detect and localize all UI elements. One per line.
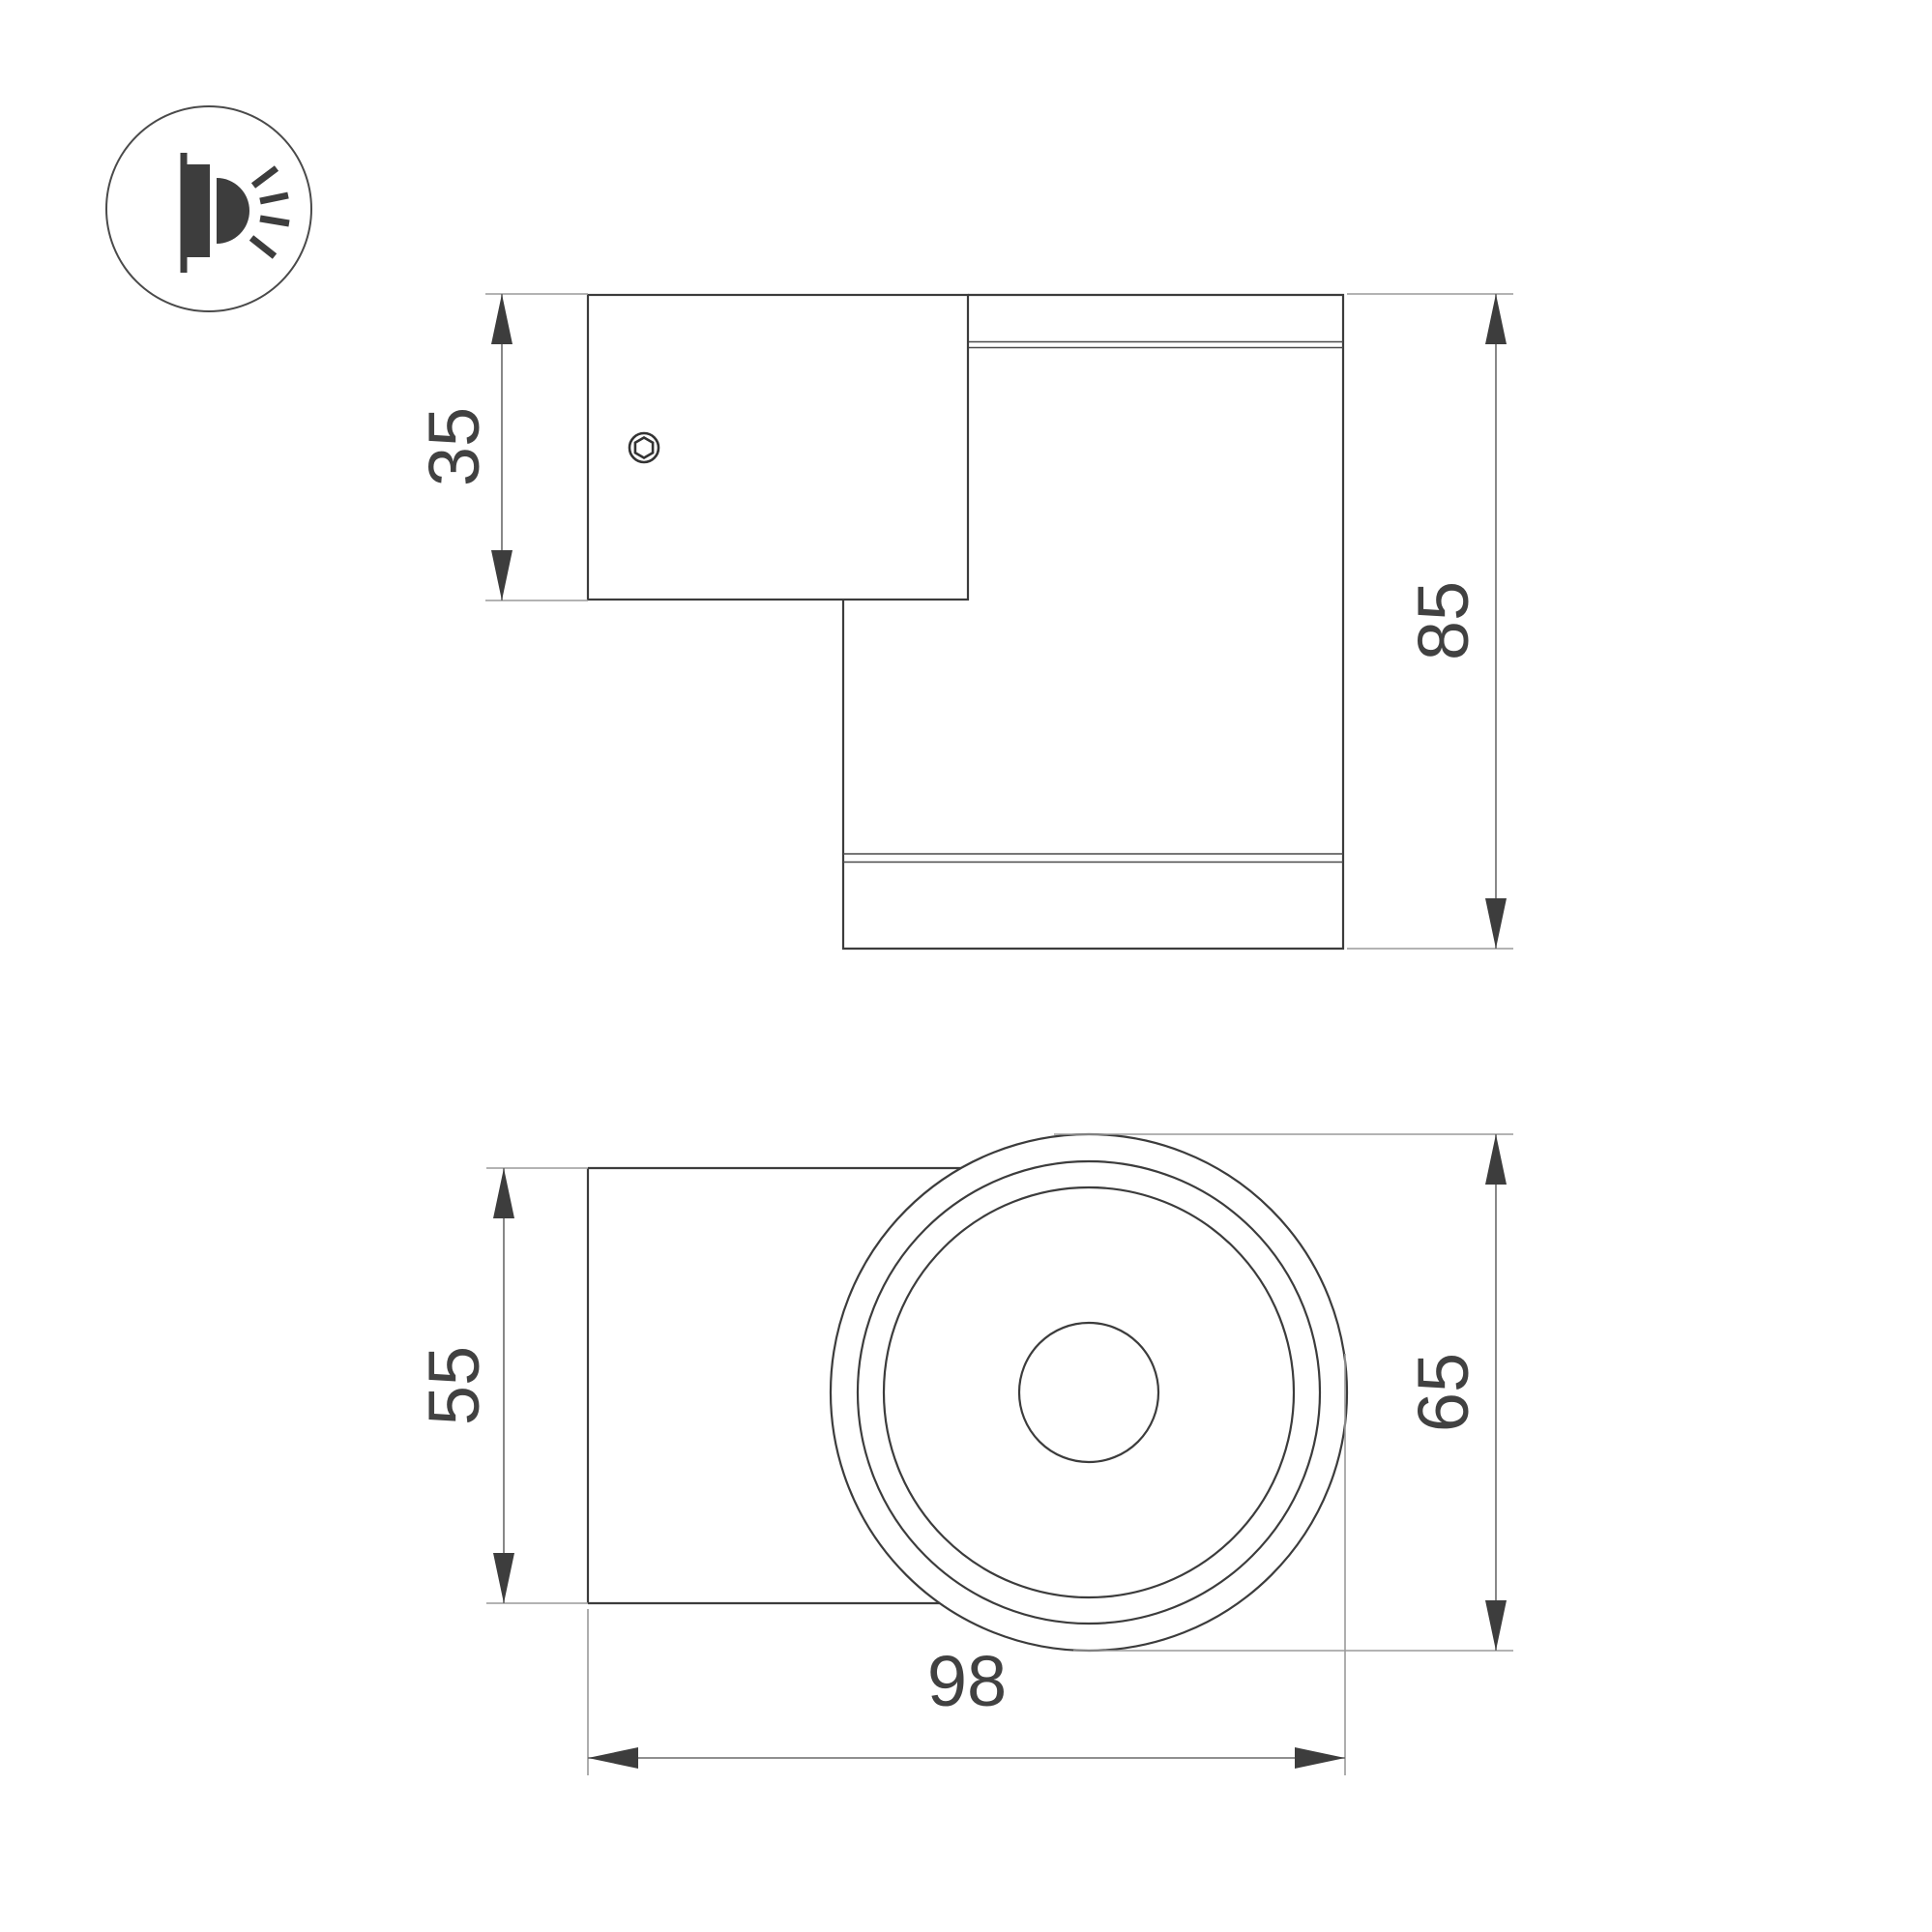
dimension-85: 85 [1347,294,1513,949]
arrowhead-down [1485,1600,1507,1651]
front-face-circles [831,1134,1347,1651]
dimension-55: 55 [414,1168,588,1603]
lamp-body-glyph [187,164,210,257]
arrowhead-right [1295,1747,1345,1769]
dimension-55-label: 55 [414,1346,494,1425]
arrowhead-left [588,1747,638,1769]
outer-ring [831,1134,1347,1651]
front-view: 55 65 98 [414,1134,1513,1775]
arrowhead-up [493,1168,514,1218]
arrowhead-down [491,550,512,600]
arrowhead-up [1485,1134,1507,1185]
middle-ring [858,1161,1320,1624]
dimension-98-label: 98 [927,1641,1007,1721]
dimension-85-label: 85 [1403,581,1483,660]
mounting-plate [588,295,968,600]
inner-ring [884,1187,1294,1597]
dimension-98: 98 [588,1354,1345,1775]
dimension-35-label: 35 [414,407,494,486]
arrowhead-up [1485,294,1507,344]
body-rectangle [588,1168,961,1603]
side-view: 35 85 [414,294,1513,949]
dimension-35: 35 [414,294,588,600]
dimension-65: 65 [1054,1134,1513,1651]
wall-lamp-icon [106,106,311,311]
arrowhead-down [1485,898,1507,949]
dimension-drawing: 35 85 [0,0,1932,1932]
arrowhead-up [491,294,512,344]
arrowhead-down [493,1553,514,1603]
drawing-page: 35 85 [0,0,1932,1932]
dimension-65-label: 65 [1403,1353,1483,1432]
led-center-circle [1019,1323,1158,1462]
